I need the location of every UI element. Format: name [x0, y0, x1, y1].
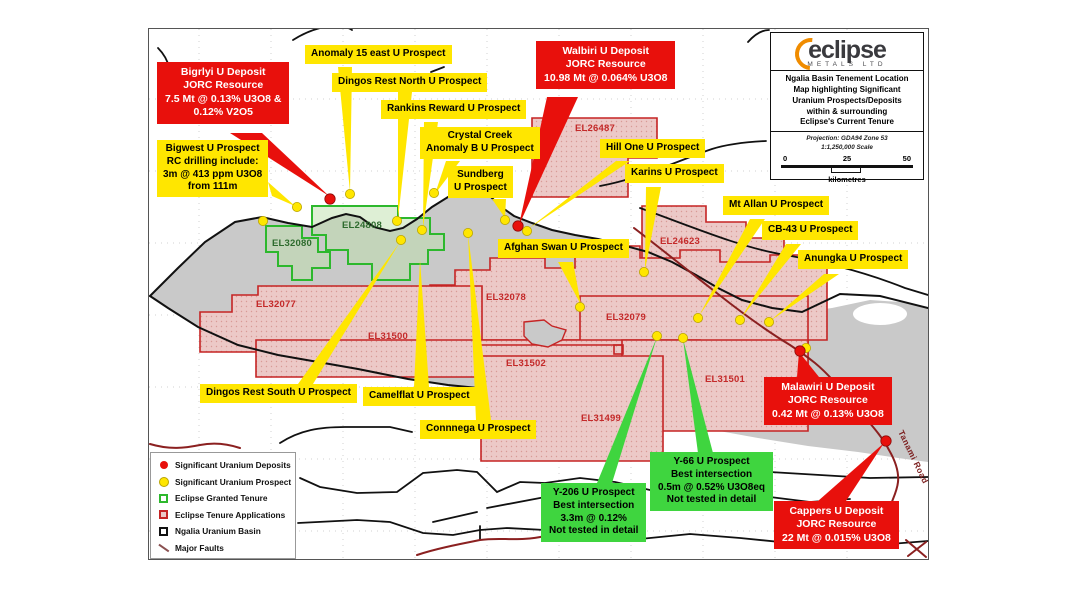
- tenement-label-el31502: EL31502: [506, 358, 546, 369]
- legend-item-tenure-applications: Eclipse Tenure Applications: [157, 507, 295, 524]
- callout-mt-allan: Mt Allan U Prospect: [723, 196, 829, 215]
- tenement-label-el32077: EL32077: [256, 299, 296, 310]
- uranium-deposit-dot: [795, 346, 805, 356]
- legend-label: Significant Uranium Prospect: [175, 477, 291, 487]
- scale-tick-25: 25: [843, 154, 851, 163]
- uranium-prospect-dot: [463, 228, 472, 237]
- uranium-prospect-dot: [258, 216, 267, 225]
- callout-rankins-reward: Rankins Reward U Prospect: [381, 100, 526, 119]
- scale-tick-0: 0: [783, 154, 787, 163]
- uranium-deposit-dot: [325, 194, 335, 204]
- callout-bigwest: Bigwest U Prospect RC drilling include: …: [157, 140, 268, 197]
- legend-box: Significant Uranium Deposits Significant…: [150, 452, 296, 559]
- deposit-dot-icon: [160, 461, 168, 469]
- uranium-prospect-dot: [392, 216, 401, 225]
- scale-unit: kilometres: [781, 175, 913, 184]
- uranium-prospect-dot: [522, 226, 531, 235]
- legend-item-granted-tenure: Eclipse Granted Tenure: [157, 490, 295, 507]
- callout-connnega: Connnega U Prospect: [420, 420, 536, 439]
- uranium-prospect-dot: [345, 189, 354, 198]
- legend-label: Eclipse Tenure Applications: [175, 510, 285, 520]
- tenement-label-el31500: EL31500: [368, 331, 408, 342]
- callout-dingos-rest-south: Dingos Rest South U Prospect: [200, 384, 357, 403]
- map-page: Tanami Road EL26487 EL24623 EL32077 EL32…: [0, 0, 1068, 601]
- uranium-prospect-dot: [292, 202, 301, 211]
- tenement-label-el24623: EL24623: [660, 236, 700, 247]
- uranium-prospect-dot: [417, 225, 426, 234]
- tenement-label-el24808: EL24808: [342, 220, 382, 231]
- callout-cappers-deposit: Cappers U Deposit JORC Resource 22 Mt @ …: [774, 501, 899, 549]
- basin-outline-icon: [159, 527, 168, 536]
- uranium-prospect-dot: [693, 313, 702, 322]
- callout-malawiri-deposit: Malawiri U Deposit JORC Resource 0.42 Mt…: [764, 377, 892, 425]
- callout-dingos-rest-north: Dingos Rest North U Prospect: [332, 73, 487, 92]
- uranium-prospect-dot: [764, 317, 773, 326]
- tenement-label-el32079: EL32079: [606, 312, 646, 323]
- scale-bar-notch: [831, 167, 861, 173]
- callout-y66: Y-66 U Prospect Best intersection 0.5m @…: [650, 452, 773, 511]
- map-title: Ngalia Basin Tenement Location Map highl…: [771, 70, 923, 132]
- projection-note: Projection: GDA94 Zone 53 1:1,250,000 Sc…: [771, 135, 923, 153]
- uranium-prospect-dot: [678, 333, 687, 342]
- callout-bigrlyi-deposit: Bigrlyi U Deposit JORC Resource 7.5 Mt @…: [157, 62, 289, 124]
- uranium-prospect-dot: [500, 215, 509, 224]
- legend-item-faults: Major Faults: [157, 540, 295, 557]
- legend-label: Eclipse Granted Tenure: [175, 493, 268, 503]
- prospect-dot-icon: [159, 477, 169, 487]
- callout-karins: Karins U Prospect: [625, 164, 724, 183]
- tenure-application-icon: [159, 510, 168, 519]
- callout-crystal-creek-anomaly-b: Crystal Creek Anomaly B U Prospect: [420, 127, 540, 159]
- scale-tick-50: 50: [903, 154, 911, 163]
- callout-cb-43: CB-43 U Prospect: [762, 221, 858, 240]
- legend-label: Ngalia Uranium Basin: [175, 526, 261, 536]
- uranium-prospect-dot: [575, 302, 584, 311]
- tenement-label-el31499: EL31499: [581, 413, 621, 424]
- tenement-el31499: [481, 356, 663, 461]
- uranium-prospect-dot: [429, 188, 438, 197]
- legend-label: Significant Uranium Deposits: [175, 460, 291, 470]
- uranium-deposit-dot: [881, 436, 891, 446]
- callout-anungka: Anungka U Prospect: [798, 250, 908, 269]
- tenement-label-el31501: EL31501: [705, 374, 745, 385]
- legend-item-basin: Ngalia Uranium Basin: [157, 523, 295, 540]
- callout-y206: Y-206 U Prospect Best intersection 3.3m …: [541, 483, 646, 542]
- eclipse-logo: eclipse: [771, 33, 923, 67]
- uranium-prospect-dot: [639, 267, 648, 276]
- tenement-label-el26487: EL26487: [575, 123, 615, 134]
- basin-white-pocket: [853, 303, 907, 325]
- uranium-deposit-dot: [513, 221, 523, 231]
- uranium-prospect-dot: [735, 315, 744, 324]
- uranium-prospect-dot: [652, 331, 661, 340]
- tenement-label-el32078: EL32078: [486, 292, 526, 303]
- legend-item-prospects: Significant Uranium Prospect: [157, 474, 295, 491]
- title-box: eclipse METALS LTD Ngalia Basin Tenement…: [770, 32, 924, 180]
- callout-anomaly-15-east: Anomaly 15 east U Prospect: [305, 45, 452, 64]
- callout-hill-one: Hill One U Prospect: [600, 139, 705, 158]
- scale-bar: 0 25 50 kilometres: [781, 154, 913, 179]
- callout-camelflat: Camelflat U Prospect: [363, 387, 476, 406]
- uranium-prospect-dot: [396, 235, 405, 244]
- tenement-label-el32080: EL32080: [272, 238, 312, 249]
- legend-label: Major Faults: [175, 543, 224, 553]
- callout-walbiri-deposit: Walbiri U Deposit JORC Resource 10.98 Mt…: [536, 41, 675, 89]
- eclipse-logo-word: eclipse: [808, 36, 886, 65]
- fault-line-icon: [158, 544, 169, 552]
- callout-sundberg: Sundberg U Prospect: [448, 166, 513, 198]
- legend-item-deposits: Significant Uranium Deposits: [157, 457, 295, 474]
- callout-afghan-swan: Afghan Swan U Prospect: [498, 239, 629, 258]
- granted-tenure-icon: [159, 494, 168, 503]
